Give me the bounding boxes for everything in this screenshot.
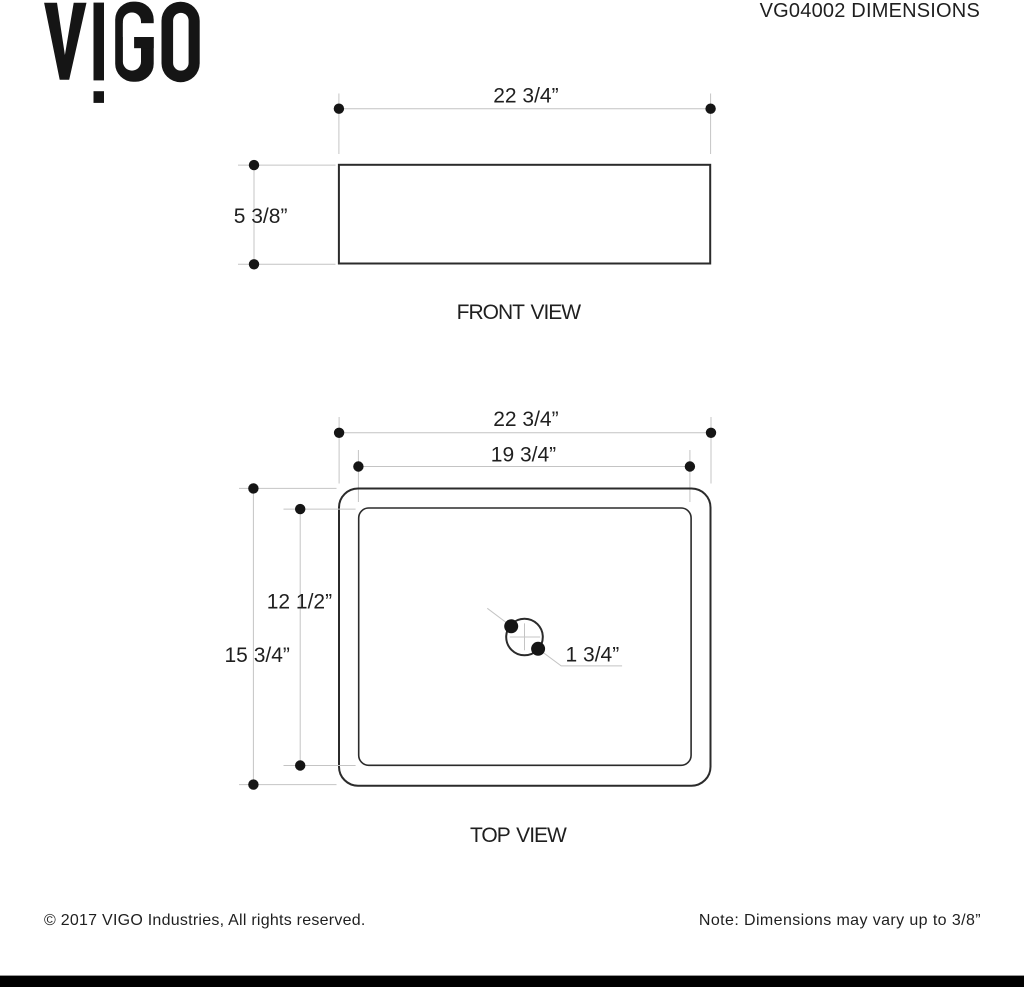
svg-text:VG04002 DIMENSIONS: VG04002 DIMENSIONS: [760, 0, 980, 22]
svg-text:FRONT VIEW: FRONT VIEW: [457, 301, 582, 324]
svg-text:19 3/4”: 19 3/4”: [491, 444, 556, 467]
svg-text:5 3/8”: 5 3/8”: [234, 205, 288, 228]
svg-text:12 1/2”: 12 1/2”: [267, 591, 332, 614]
svg-text:15 3/4”: 15 3/4”: [225, 644, 290, 667]
svg-text:© 2017 VIGO Industries, All ri: © 2017 VIGO Industries, All rights reser…: [44, 912, 366, 929]
svg-text:Note: Dimensions may vary up t: Note: Dimensions may vary up to 3/8”: [699, 912, 981, 929]
svg-text:22 3/4”: 22 3/4”: [493, 408, 558, 431]
svg-text:1 3/4”: 1 3/4”: [566, 644, 620, 667]
svg-text:22 3/4”: 22 3/4”: [493, 85, 558, 108]
svg-text:TOP VIEW: TOP VIEW: [470, 824, 567, 847]
